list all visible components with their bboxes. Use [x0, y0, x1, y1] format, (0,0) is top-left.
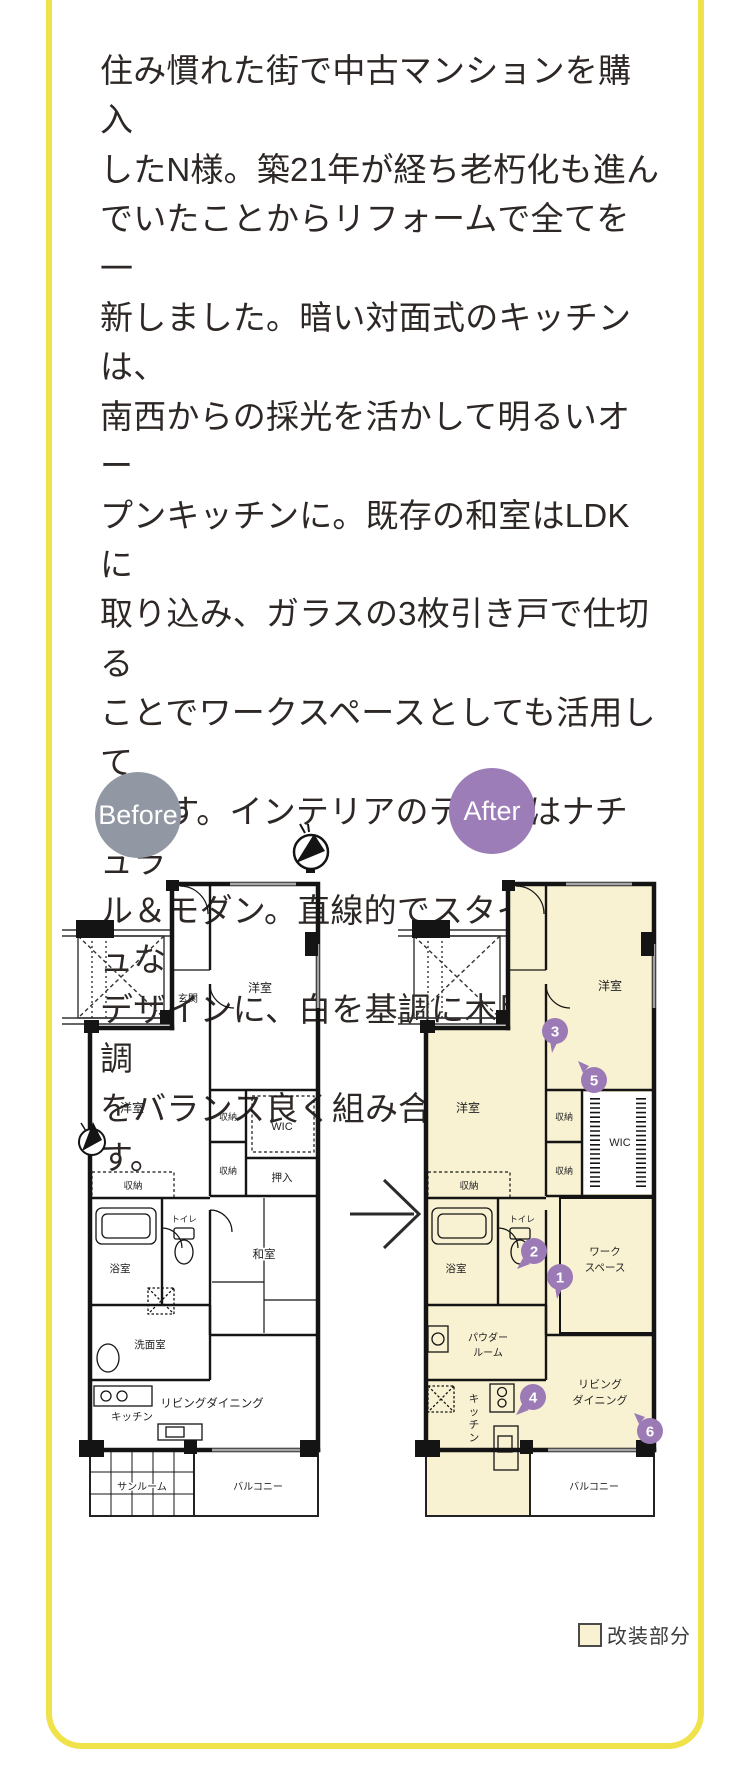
room-label-sunroom: サンルーム — [117, 1481, 167, 1493]
room-label-kitchen-char: キ — [469, 1393, 480, 1405]
room-label-workspace-2: スペース — [585, 1262, 626, 1274]
renovated-area-swatch — [578, 1623, 602, 1647]
room-label-balcony: バルコニー — [569, 1481, 619, 1493]
room-label-kitchen-char: ン — [469, 1432, 480, 1444]
common-area — [62, 930, 170, 1024]
room-label-wic: WIC — [271, 1121, 292, 1133]
room-label-storage-c1: 収納 — [555, 1111, 573, 1122]
common-area — [398, 930, 506, 1024]
north-arrow-icon — [284, 822, 336, 876]
legend: 改装部分 — [578, 1620, 691, 1649]
room-label-wic: WIC — [609, 1137, 630, 1149]
room-label-bath: 浴室 — [110, 1262, 131, 1275]
before-badge: Before — [95, 772, 181, 858]
after-badge: After — [449, 768, 535, 854]
room-label-powder-2: ルーム — [473, 1347, 503, 1359]
legend-label: 改装部分 — [607, 1620, 691, 1649]
room-label-kitchen-char: チ — [469, 1419, 480, 1431]
before-badge-label: Before — [98, 800, 178, 831]
room-label-kitchen-char: ッ — [469, 1406, 480, 1418]
marker-number: 3 — [551, 1024, 559, 1041]
room-label-kitchen: キッチン — [111, 1411, 153, 1423]
compass-small-icon — [79, 1122, 105, 1155]
marker-number: 1 — [556, 1270, 564, 1287]
room-label-bedroom-top: 洋室 — [598, 978, 622, 993]
description-line: います。インテリアのテーマはナチュラ — [100, 787, 660, 886]
marker-number: 6 — [646, 1424, 654, 1441]
room-label-powder-1: パウダー — [468, 1331, 508, 1344]
after-badge-label: After — [463, 796, 520, 827]
outer-walls — [90, 884, 318, 1450]
room-label-bedroom-top: 洋室 — [248, 980, 272, 995]
room-label-workspace-1: ワーク — [589, 1246, 621, 1258]
description-line: プンキッチンに。既存の和室はLDKに — [100, 491, 660, 590]
room-label-toilet: トイレ — [509, 1214, 535, 1224]
page: 住み慣れた街で中古マンションを購入 したN様。築21年が経ち老朽化も進ん でいた… — [0, 0, 750, 1769]
room-label-washroom: 洗面室 — [134, 1338, 166, 1351]
description-line: 住み慣れた街で中古マンションを購入 — [100, 46, 660, 145]
room-label-living-2: ダイニング — [573, 1393, 628, 1407]
room-label-living: リビングダイニング — [160, 1396, 264, 1410]
after-floor-plan: 洋室 洋室 収納 収納 収納 WIC ワーク スペース 浴室 トイレ パウダー … — [398, 880, 680, 1530]
room-label-storage-left: 収納 — [123, 1180, 142, 1192]
room-label-storage-left: 収納 — [459, 1180, 478, 1192]
room-label-bedroom-left: 洋室 — [120, 1100, 144, 1115]
marker-number: 4 — [529, 1390, 538, 1407]
room-label-storage-c2: 収納 — [219, 1165, 237, 1176]
marker-number: 2 — [530, 1244, 538, 1261]
marker-number: 5 — [590, 1073, 598, 1090]
description-line: したN様。築21年が経ち老朽化も進ん — [100, 145, 660, 194]
room-label-toilet: トイレ — [171, 1214, 197, 1224]
room-label-balcony: バルコニー — [233, 1481, 283, 1493]
room-label-bath: 浴室 — [446, 1262, 467, 1275]
room-label-washitsu: 和室 — [253, 1247, 276, 1261]
room-label-bedroom-left: 洋室 — [456, 1100, 480, 1115]
description-line: 取り込み、ガラスの3枚引き戸で仕切る — [100, 589, 660, 688]
room-label-storage-c1: 収納 — [219, 1111, 237, 1122]
room-label-living-1: リビング — [578, 1377, 622, 1391]
room-label-oshiire: 押入 — [272, 1171, 293, 1184]
description-line: 南西からの採光を活かして明るいオー — [100, 392, 660, 491]
description-line: ことでワークスペースとしても活用して — [100, 688, 660, 787]
description-line: でいたことからリフォームで全てを一 — [100, 194, 660, 293]
description-line: 新しました。暗い対面式のキッチンは、 — [100, 293, 660, 392]
before-floor-plan: 玄関 洋室 洋室 収納 収納 収納 WIC 押入 和室 浴室 トイレ 洗面室 キ… — [62, 880, 344, 1530]
room-label-entrance: 玄関 — [178, 992, 198, 1005]
room-label-storage-c2: 収納 — [555, 1165, 573, 1176]
